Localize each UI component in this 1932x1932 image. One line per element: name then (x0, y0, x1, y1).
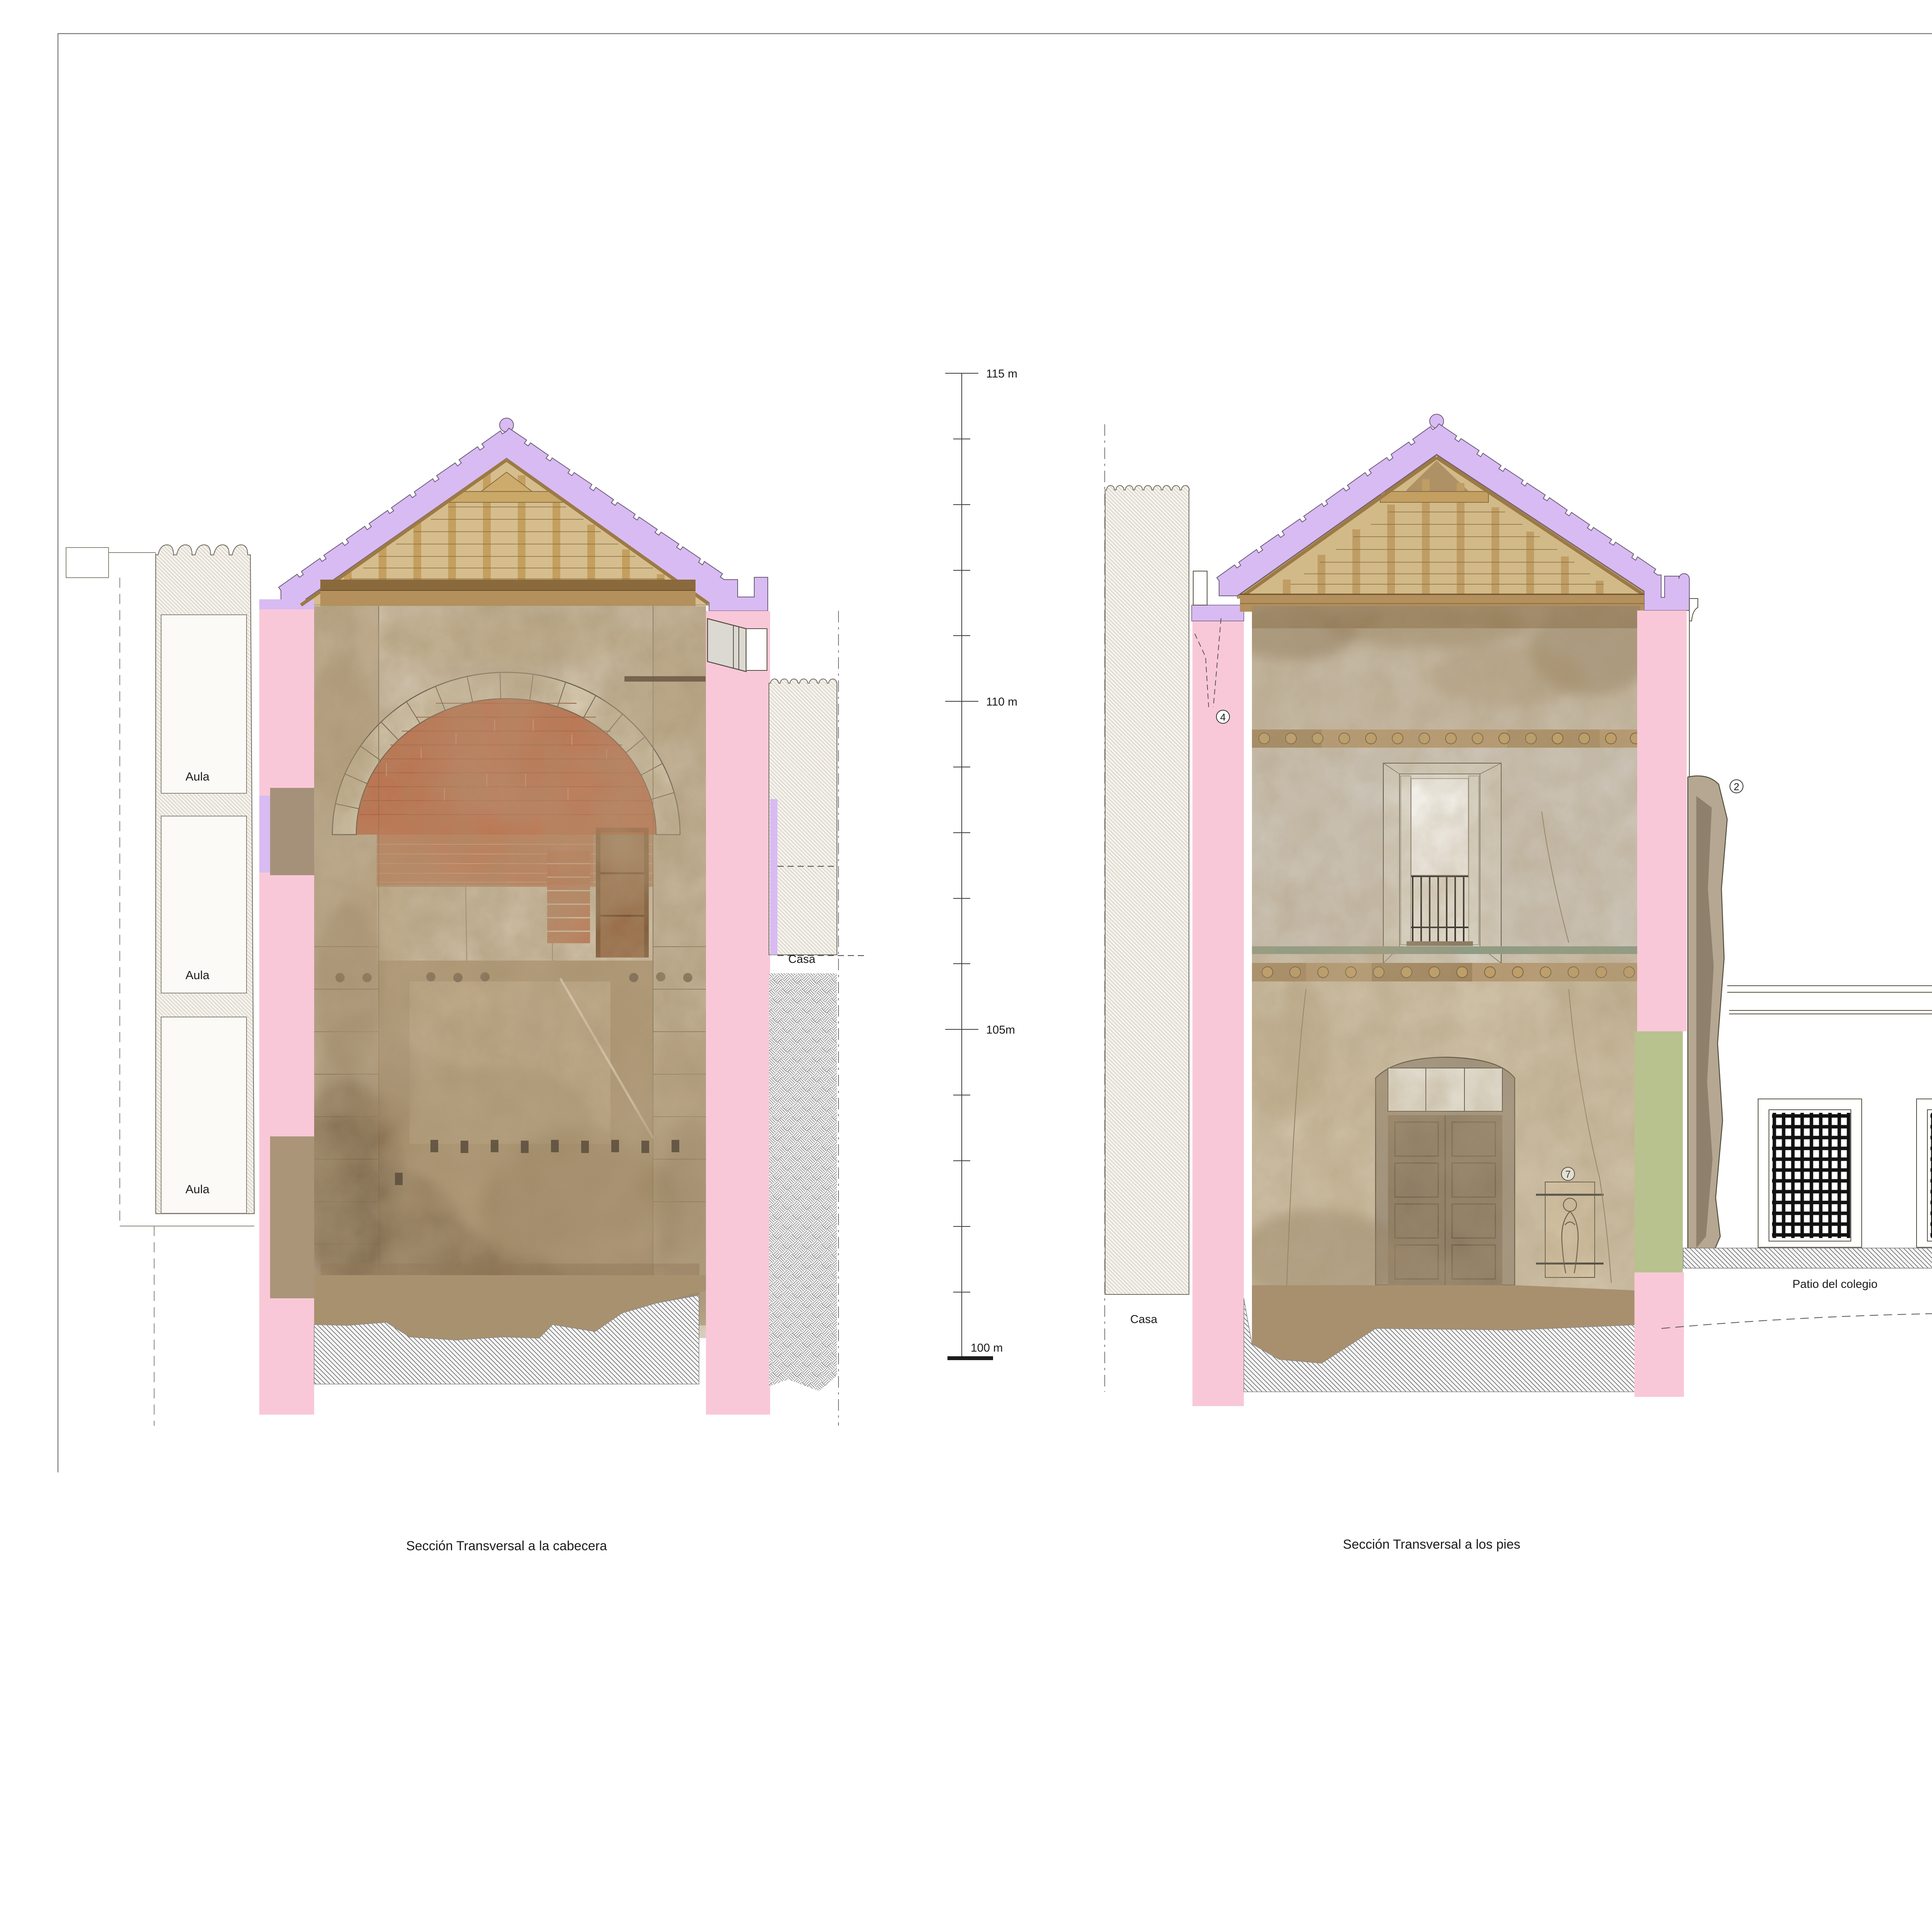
svg-text:110 m: 110 m (986, 696, 1017, 708)
svg-text:Aula: Aula (185, 770, 210, 783)
svg-text:Patio del colegio: Patio del colegio (1793, 1278, 1878, 1291)
svg-text:Aula: Aula (185, 968, 210, 982)
svg-text:2: 2 (1734, 781, 1739, 793)
svg-text:115 m: 115 m (986, 367, 1017, 380)
svg-text:Casa: Casa (1130, 1313, 1157, 1326)
svg-text:4: 4 (1220, 711, 1226, 723)
svg-text:Sección Transversal a la cabec: Sección Transversal a la cabecera (406, 1539, 607, 1553)
svg-text:100 m: 100 m (971, 1342, 1003, 1354)
svg-text:105m: 105m (986, 1024, 1015, 1036)
svg-text:Sección Transversal a los pies: Sección Transversal a los pies (1343, 1537, 1520, 1552)
svg-text:Aula: Aula (185, 1182, 210, 1196)
svg-text:Casa: Casa (788, 953, 815, 966)
